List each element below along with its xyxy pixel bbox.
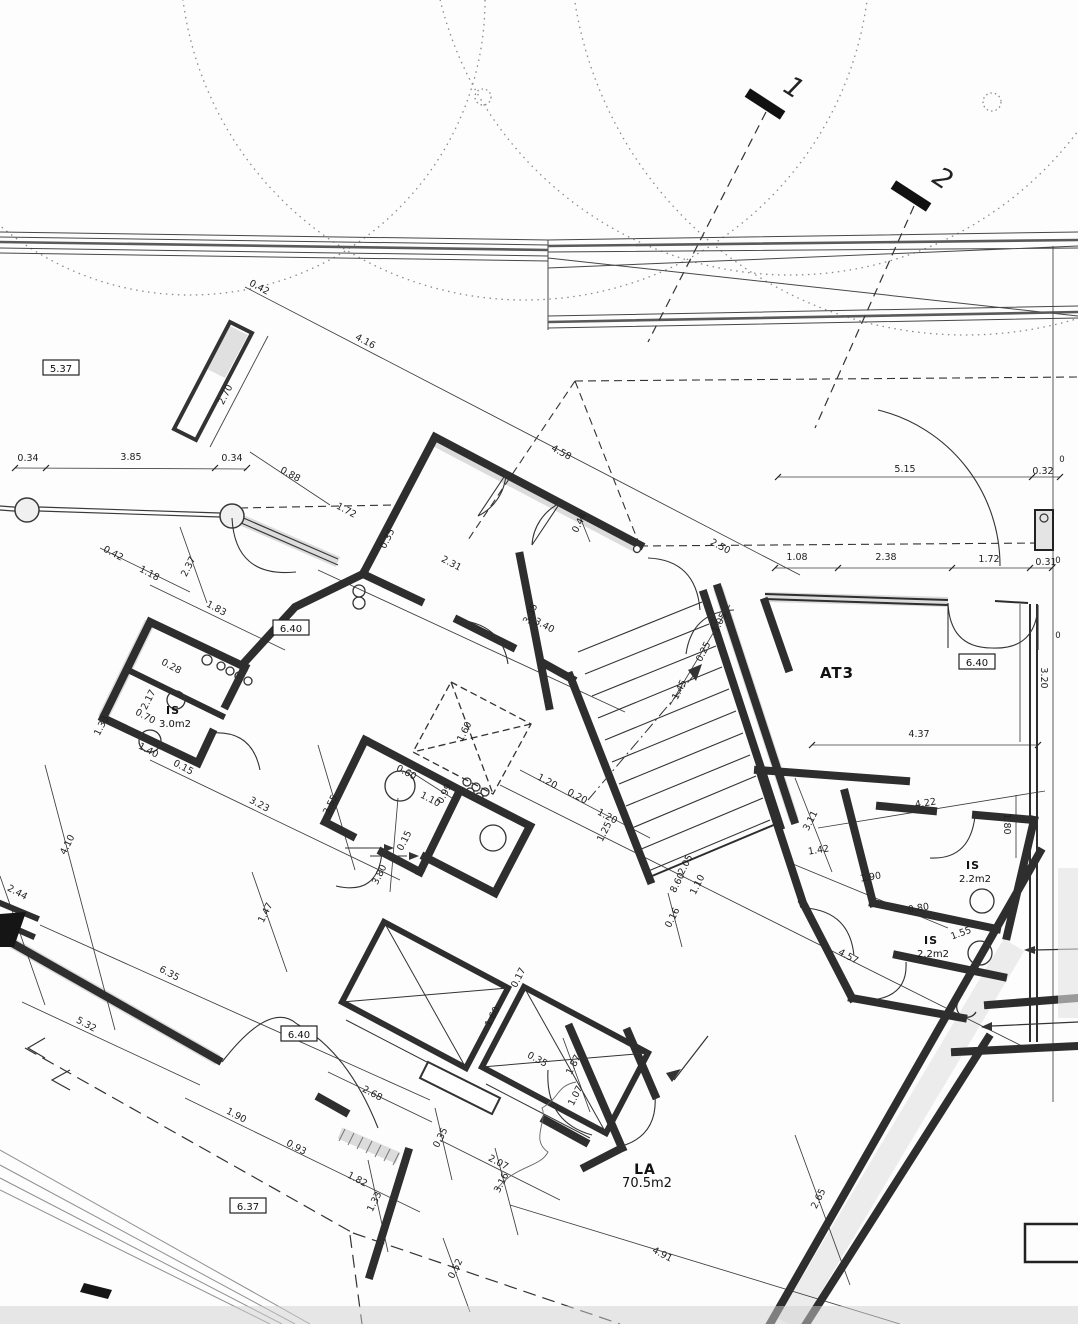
fence <box>0 498 338 565</box>
dimension-label: 0.15 <box>395 829 414 853</box>
entry-arrowhead <box>981 1022 992 1031</box>
tree-canopy-circle <box>570 0 1078 335</box>
dimension-label: 2.31 <box>439 554 463 574</box>
vent-pipe <box>217 662 225 670</box>
dimension-label: 0.88 <box>278 465 302 485</box>
direction-arrowhead <box>384 844 394 852</box>
walls-thick <box>12 437 1078 1324</box>
dimension-label: 1.45 <box>670 678 689 702</box>
dimension-label: 4.16 <box>353 332 377 352</box>
dimension-label: 0.35 <box>525 1050 549 1070</box>
room-labels: AT3IS3.0m2IS2.2m2IS2.2m2LA70.5m2 <box>159 664 991 1191</box>
dimension-label: 1.80 <box>1001 813 1012 834</box>
dimension-label: 1.87 <box>564 1053 583 1077</box>
tree-trunk-circle <box>475 89 491 105</box>
detail-box-partial <box>1025 1224 1078 1262</box>
dimension-label: 1.60 <box>455 720 474 744</box>
room-area: 2.2m2 <box>917 949 949 960</box>
vent-pipe <box>202 655 212 665</box>
planter-bar <box>174 322 268 447</box>
room-name: IS <box>166 704 180 717</box>
dimension-label: 1.33 <box>92 714 111 738</box>
dimension-label: 1.90 <box>859 870 882 884</box>
setback-dashed <box>240 377 1078 546</box>
tree-canopy-circle <box>180 0 870 300</box>
column-symbol <box>353 597 365 609</box>
dimension-label: 0.34 <box>17 453 38 464</box>
dimension-label: 1.25 <box>595 820 614 844</box>
toilet <box>970 889 994 913</box>
dimension-label: 0.35 <box>378 527 397 551</box>
property-line-dashed <box>25 1048 620 1324</box>
dimension-label: 0.34 <box>221 453 242 464</box>
dimension-lines <box>0 246 1060 1324</box>
room-name: AT3 <box>820 664 854 682</box>
room-area: 70.5m2 <box>622 1176 672 1191</box>
dimension-label: 0.42 <box>101 544 125 564</box>
tree-canopy-circle <box>0 0 485 295</box>
dimension-label: 1.42 <box>807 843 830 857</box>
dimension-label: 2.37 <box>179 555 198 579</box>
curb-lines <box>0 1150 310 1324</box>
dimension-label: 1.72 <box>334 501 358 521</box>
property-chevrons <box>28 1038 70 1090</box>
dimension-label: 1.60 <box>483 1005 502 1029</box>
dimension-label: 2.38 <box>875 552 896 563</box>
room-name: IS <box>924 934 938 947</box>
toilet <box>480 825 506 851</box>
entry-arrow-line <box>674 949 1078 1080</box>
dimension-label: 1.07 <box>566 1084 585 1108</box>
spot-level-value: 6.40 <box>280 624 302 635</box>
dimension-label: 0.20 <box>565 787 589 807</box>
door-swings <box>212 410 1038 1146</box>
spot-level-value: 6.40 <box>966 658 988 669</box>
threshold-band <box>340 1133 398 1158</box>
stair-walk-arrowhead <box>688 664 702 681</box>
site-details <box>0 510 1078 1324</box>
hatch-band-wide <box>788 945 1014 1324</box>
dimension-label: 0 <box>1055 631 1060 641</box>
dimension-label: 0.52 <box>446 1257 465 1281</box>
dimension-label: 4.58 <box>549 443 573 463</box>
dimension-label: 0.70 <box>133 707 157 727</box>
survey-mark <box>80 1283 112 1299</box>
dimension-label: 1.47 <box>256 901 275 925</box>
dimension-label: 0.35 <box>431 1126 450 1150</box>
riser-pipe <box>463 778 471 786</box>
direction-arrowhead <box>409 852 419 860</box>
dimension-label: 5.15 <box>894 464 915 475</box>
plan-canvas: 1 2 5.376.406.406.406.37 AT3IS3.0m2IS2.2… <box>0 0 1078 1324</box>
dimension-label: 4.91 <box>650 1245 674 1265</box>
dimension-label: 3.85 <box>120 452 141 463</box>
entry-arrowhead <box>666 1069 681 1082</box>
dimension-label: 1.08 <box>786 552 807 563</box>
dimension-label: 1.72 <box>978 554 999 565</box>
section-marker-number: 1 <box>778 70 809 105</box>
dimension-label: 3.11 <box>801 809 820 833</box>
dimension-label: 1.83 <box>204 599 228 619</box>
spot-level-value: 6.40 <box>288 1030 310 1041</box>
pier-hatched <box>1035 510 1053 550</box>
dimension-label: 4.10 <box>58 833 77 857</box>
scan-shadow-bottom <box>0 1306 1078 1324</box>
dimension-label: 0.25 <box>694 640 713 664</box>
floor-plan-sheet: 1 2 5.376.406.406.406.37 AT3IS3.0m2IS2.2… <box>0 0 1078 1324</box>
vent-pipe <box>244 677 252 685</box>
road-band <box>0 232 1078 330</box>
dimension-label: 2.50 <box>708 537 732 557</box>
corner-marker <box>634 546 641 553</box>
section-line-dashed <box>648 112 914 428</box>
spot-level-value: 5.37 <box>50 364 72 375</box>
dimension-label: 3.20 <box>1038 667 1049 688</box>
dimension-label: 3.80 <box>370 863 389 887</box>
vent-pipe <box>226 667 234 675</box>
dimension-label: 3.16 <box>492 1171 511 1195</box>
dimension-label: 8.60 <box>668 871 687 895</box>
dimension-label: 1.18 <box>137 564 161 584</box>
dimension-label: 2.68 <box>360 1084 384 1104</box>
dimension-label: 0.28 <box>159 657 183 677</box>
dimension-label: 1.55 <box>949 925 973 943</box>
dimension-label: 6.35 <box>157 964 181 984</box>
dimension-label: 3.23 <box>247 795 271 815</box>
dimension-label: 2.07 <box>486 1153 510 1173</box>
tree-trunk-circle <box>983 93 1001 111</box>
dimension-label: 0.31 <box>1035 557 1056 568</box>
room-area: 2.2m2 <box>959 874 991 885</box>
dimension-label: 1.33 <box>365 1190 384 1214</box>
dimension-label: 0 <box>1055 556 1060 566</box>
dimension-label: 1.82 <box>345 1170 369 1190</box>
dimension-label: 2.44 <box>5 883 29 903</box>
section-marker-number: 2 <box>927 161 958 196</box>
walls-medium <box>0 670 648 1133</box>
dimension-label: 0.93 <box>284 1138 308 1158</box>
room-name: IS <box>966 859 980 872</box>
fence-post <box>15 498 39 522</box>
dimension-label: 2.65 <box>809 1187 828 1211</box>
dimension-label: 0.16 <box>663 906 682 930</box>
scan-shadow-right <box>1058 868 1078 1018</box>
dimension-label: 4.37 <box>908 729 929 740</box>
section-marker-bar <box>891 180 932 211</box>
dimension-label: 1.10 <box>688 873 707 897</box>
hatch-band <box>12 441 640 1060</box>
dimension-label: 0 <box>1059 455 1064 465</box>
dimension-label: 0.32 <box>1032 466 1053 477</box>
spot-level-value: 6.37 <box>237 1202 259 1213</box>
tree-canopies <box>0 0 1078 335</box>
room-area: 3.0m2 <box>159 719 191 730</box>
